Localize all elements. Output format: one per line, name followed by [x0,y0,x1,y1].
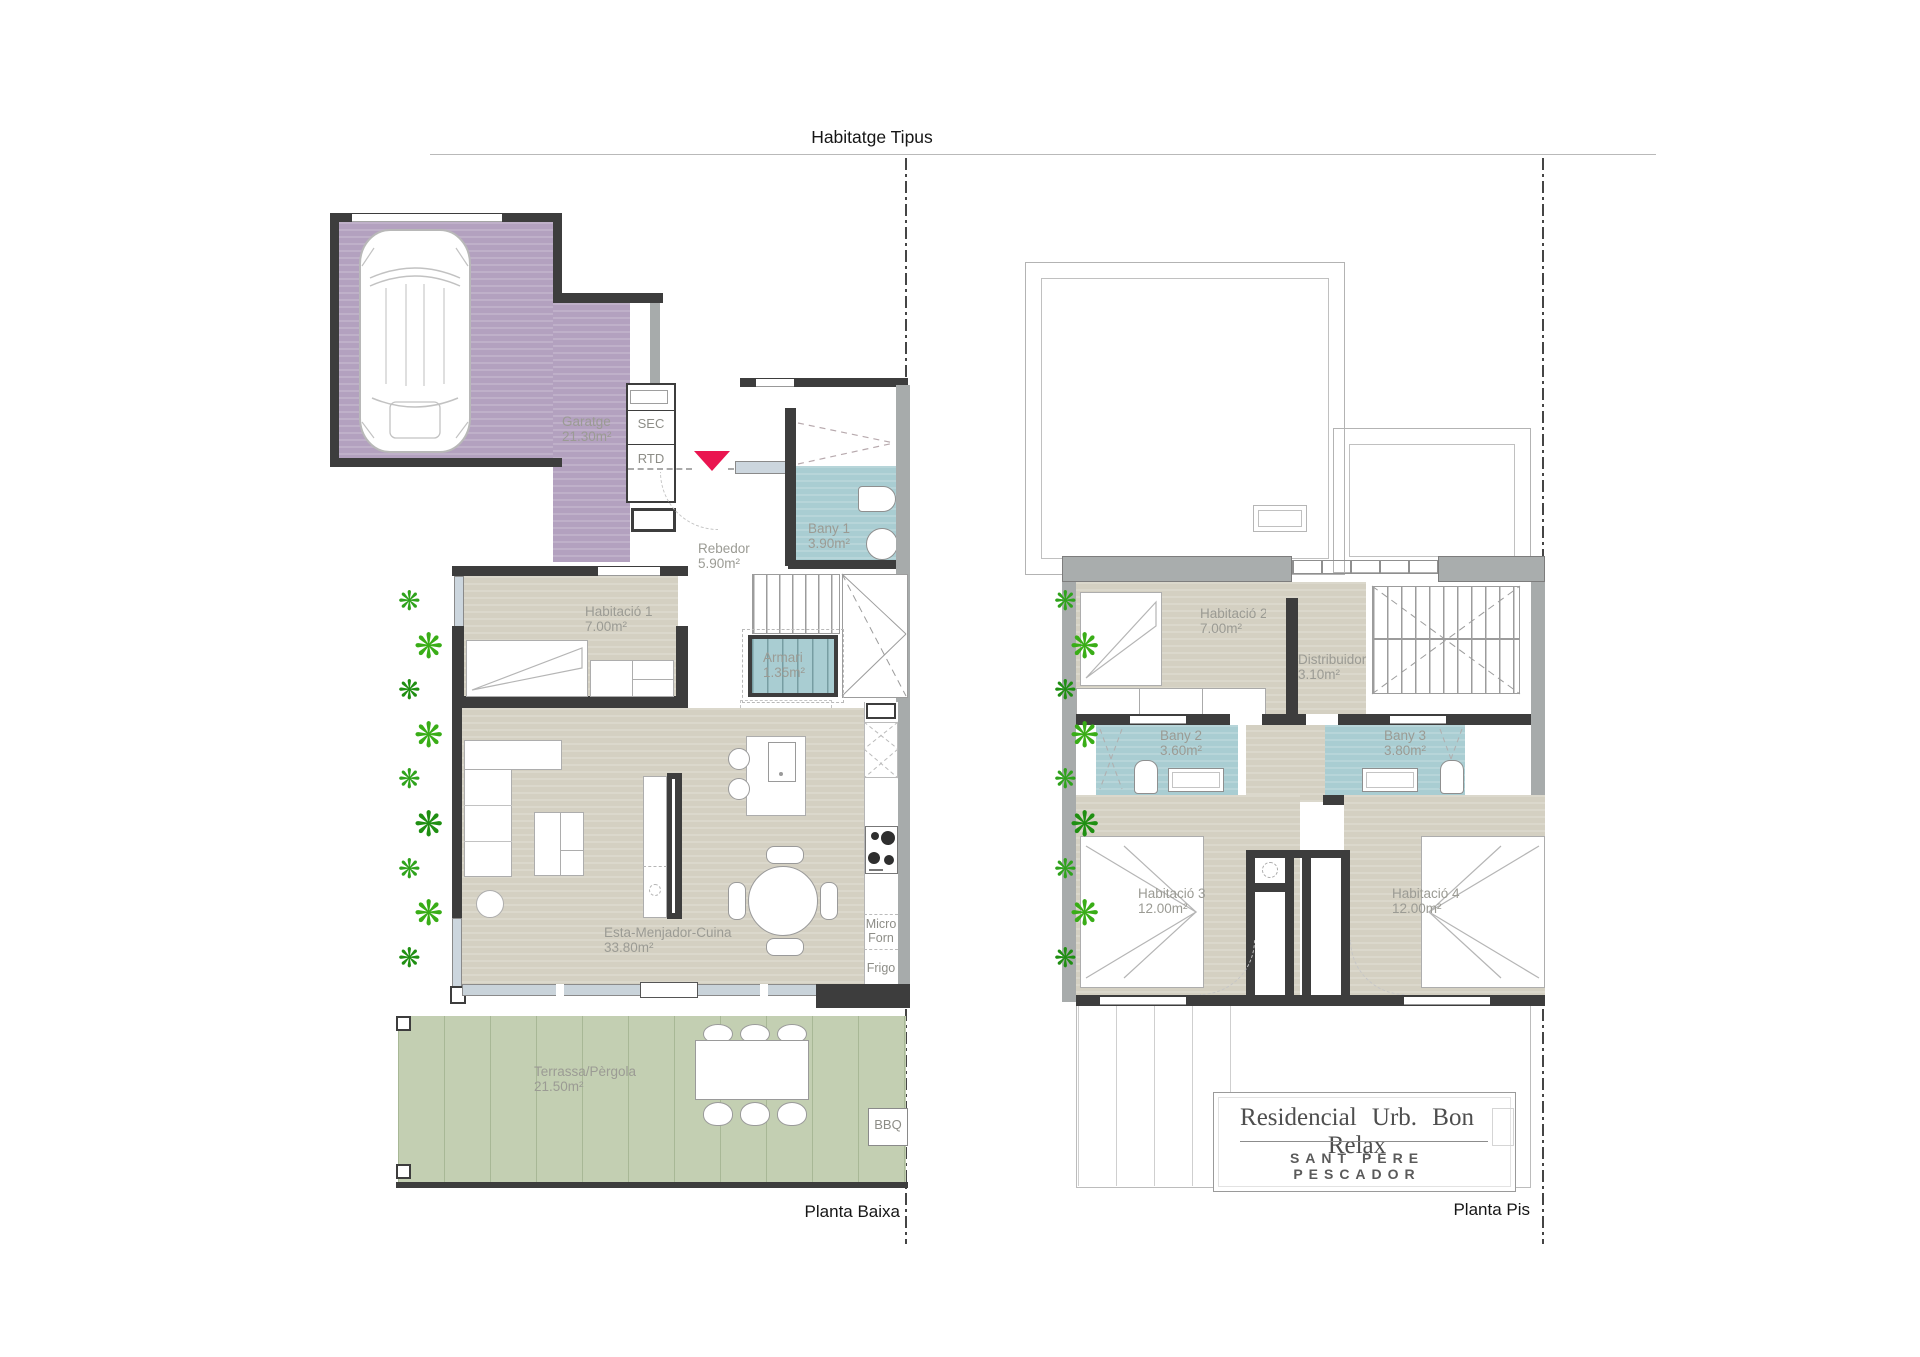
chair [766,938,804,956]
bedroom1-label: Habitació 1 7.00m² [585,604,653,635]
divider-wall-inner [672,779,675,913]
wall [788,560,900,569]
pergola-post [396,1016,411,1031]
wall [553,293,663,303]
sofa [464,769,512,877]
plant-icon: ❋ [414,891,443,937]
wall [1255,883,1285,892]
plant-icon: ❋ [398,669,421,713]
plant-icon: ❋ [414,713,443,759]
sheet-title: Habitatge Tipus [722,127,1022,148]
toilet-icon [858,486,896,512]
console-divider [643,866,667,867]
garage-door [352,214,502,222]
side-table-divider [560,812,561,876]
bedroom1-window [598,567,660,576]
window-mullion [556,984,564,996]
bath3-door-gap [1306,714,1338,725]
oven-label: Forn [864,932,898,946]
side-table-divider [560,850,584,851]
bedroom2-label: Habitació 2 7.00m² [1200,606,1268,637]
title-rule [430,154,1656,155]
plant-icon: ❋ [1070,624,1099,670]
stairs [752,574,840,634]
garage-label: Garatge 21.30m² [562,414,612,445]
chair [777,1102,807,1126]
floor-plan-sheet: Habitatge Tipus Garatge 21.30m² [0,0,1920,1357]
bath3-window [1390,716,1446,724]
wall [330,213,339,467]
console-mark [649,884,661,896]
bathtub-inner [1366,772,1414,788]
counter-return [866,703,896,719]
island-sink [768,742,796,782]
garage-cabinet [631,508,676,532]
plant-icon: ❋ [414,802,443,848]
wall [330,458,562,467]
stool [728,778,750,800]
fridge-label: Frigo [864,962,898,976]
sofa-cushion-line [464,841,512,842]
plant-icon: ❋ [1054,937,1077,981]
bedroom4-label: Habitació 4 12.00m² [1392,886,1460,917]
bath3-label: Bany 3 3.80m² [1384,728,1426,759]
terrace-door [640,982,698,998]
upper-caption: Planta Pis [1390,1200,1530,1220]
distributor-floor [1246,716,1326,802]
chair [703,1102,733,1126]
stair-diagonals [1372,586,1520,694]
closet-label: Armari 1.35m² [763,650,805,681]
bath1-window [756,379,794,387]
distributor-floor [1266,582,1366,716]
wall [1285,855,1294,1000]
living-side-window [452,918,462,988]
bedroom3-window [1100,997,1186,1005]
bath1-label: Bany 1 3.90m² [808,521,850,552]
chair [740,1102,770,1126]
bedroom4-window [1404,997,1490,1005]
stool [728,748,750,770]
plant-icon: ❋ [1054,848,1077,892]
roof-hatch-inner [1258,510,1302,527]
chair [766,846,804,864]
car-icon [352,226,478,456]
bed-fold-marks [466,640,588,697]
sec-label: SEC [626,417,676,431]
plant-icon: ❋ [398,580,421,624]
plant-icon: ❋ [414,624,443,670]
wall [785,408,796,566]
shower-marks [798,420,898,466]
entry-marker-icon [694,451,730,471]
living-label: Esta-Menjador-Cuina 33.80m² [604,925,732,956]
bedroom1-side-window [454,576,464,628]
chair [728,882,746,920]
plant-icon: ❋ [398,758,421,802]
sink-icon [866,528,898,560]
toilet-icon [1440,760,1464,794]
dining-table [748,866,818,936]
bathtub-inner [1172,772,1220,788]
pergola-post [396,1164,411,1179]
porch-window [735,461,787,474]
roof-outline-inner [1349,444,1515,557]
window-mullion [760,984,768,996]
terrace-floor [398,1016,906,1184]
location-name: SANT PERE PESCADOR [1222,1150,1492,1182]
garden-strip: ❋ ❋ ❋ ❋ ❋ ❋ ❋ ❋ ❋ [1054,580,1108,981]
side-table [534,812,584,876]
media-console [643,776,667,918]
cabinet-x-marks [864,722,898,778]
core-shaft [1311,855,1341,1000]
title-block-stamp [1492,1108,1514,1146]
pouf [476,890,504,918]
wall [1438,556,1545,582]
bedroom3-label: Habitació 3 12.00m² [1138,886,1206,917]
core-mark [1262,862,1278,878]
sink-faucet [779,772,783,776]
hall-label: Rebedor 5.90m² [698,541,750,572]
plant-icon: ❋ [1070,802,1099,848]
wall [1062,556,1292,582]
bath2-door-gap [1230,714,1262,725]
wardrobe-divider [632,679,674,680]
bbq-label: BBQ [868,1118,908,1132]
plant-icon: ❋ [398,937,421,981]
wall [1246,855,1255,1000]
chair [820,882,838,920]
plant-icon: ❋ [1070,713,1099,759]
terrace-table [695,1040,809,1100]
sofa [464,740,562,770]
plant-icon: ❋ [1054,758,1077,802]
closet-niche [630,390,668,404]
wall [1286,598,1298,716]
title-block-rule [1240,1141,1488,1142]
closet-divider [628,410,674,411]
micro-label: Micro [864,918,898,932]
wall [553,213,562,303]
ground-caption: Planta Baixa [760,1202,900,1222]
plant-icon: ❋ [398,848,421,892]
sofa-cushion-line [464,805,512,806]
wall [1246,850,1350,858]
bath2-window [1130,716,1186,724]
wall [1341,855,1350,1000]
distributor-label: Distribuidor 3.10m² [1298,652,1366,683]
plant-icon: ❋ [1054,580,1077,624]
toilet-icon [1134,760,1158,794]
terrace-label: Terrassa/Pèrgola 21.50m² [534,1064,636,1095]
terrace-edge-wall [396,1182,908,1188]
threshold-line [628,468,692,470]
cooktop-icon [865,826,898,874]
bath2-label: Bany 2 3.60m² [1160,728,1202,759]
stair-diagonals [842,574,908,698]
stair-railing [1292,560,1438,574]
plant-icon: ❋ [1054,669,1077,713]
plant-icon: ❋ [1070,891,1099,937]
wall [816,984,910,1008]
closet-divider [628,444,674,445]
garden-strip: ❋ ❋ ❋ ❋ ❋ ❋ ❋ ❋ ❋ [398,580,452,981]
wall [1302,855,1311,1000]
rtd-label: RTD [626,452,676,466]
wall [452,696,688,708]
